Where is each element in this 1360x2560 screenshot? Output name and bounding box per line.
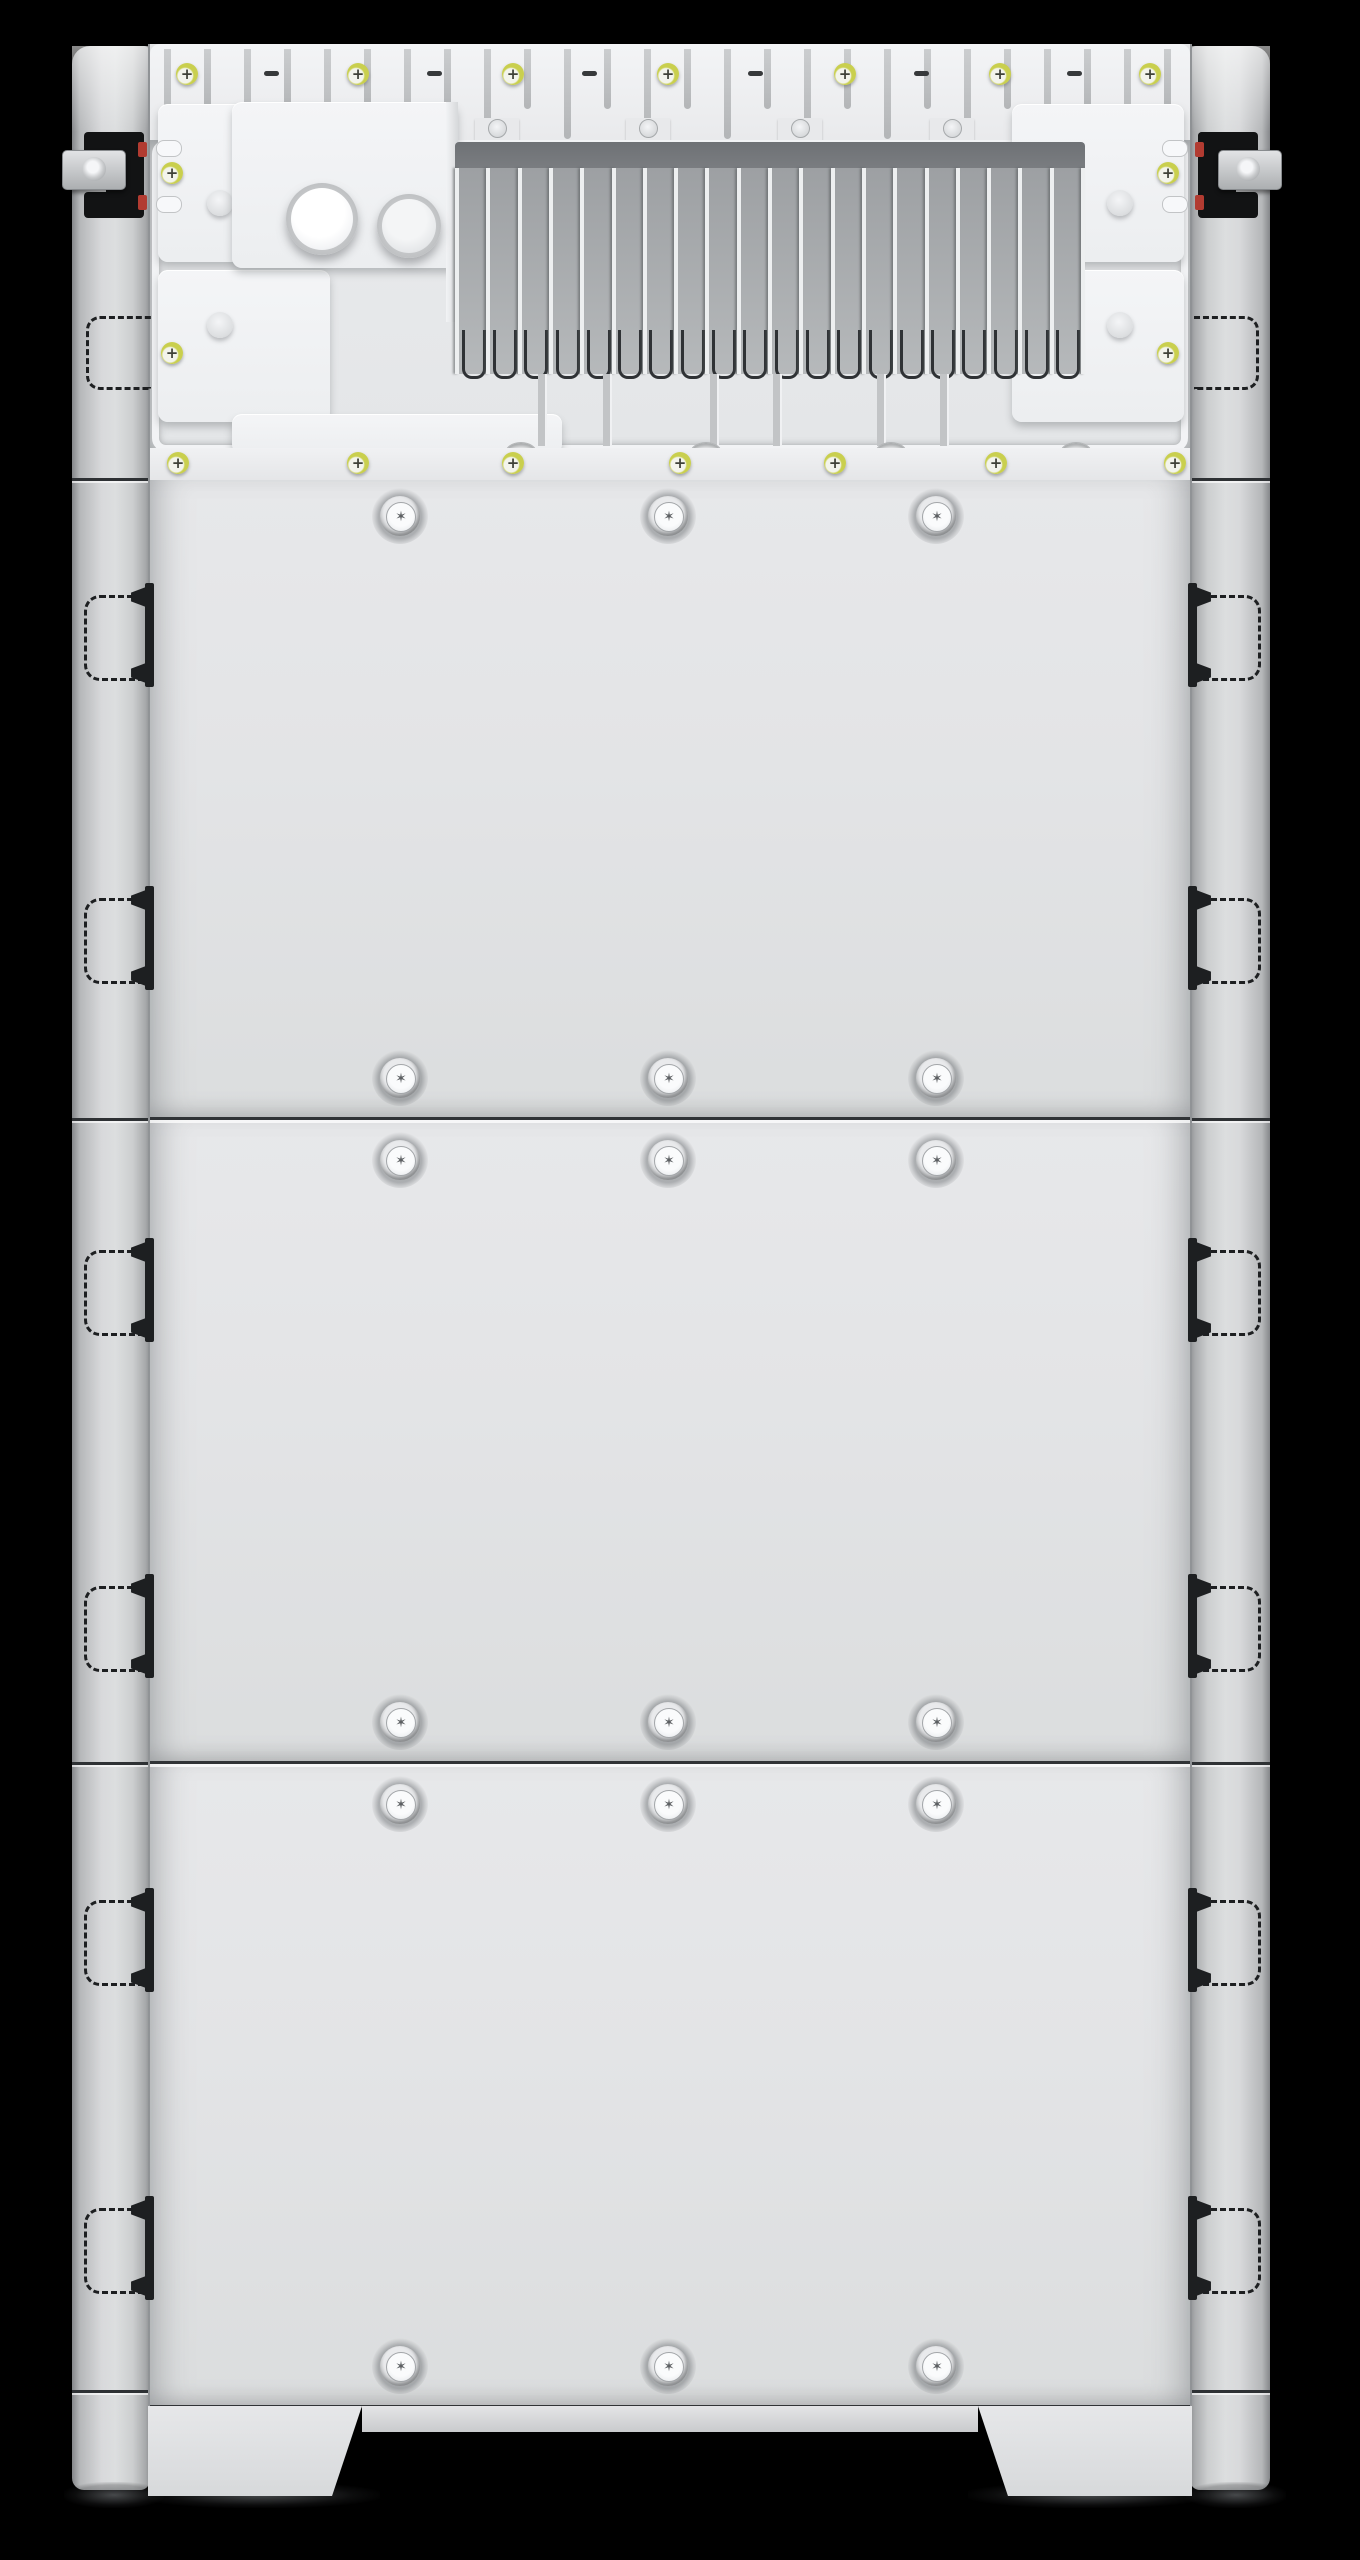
heatsink-channel: [1025, 330, 1049, 379]
rail-seam-highlight: [1190, 1765, 1270, 1767]
compartment-knob: [207, 312, 233, 338]
heatsink-channel: [462, 330, 486, 379]
rail-top-highlight: [1190, 46, 1270, 132]
handle-latch-bar: [145, 1888, 154, 1992]
cover-screw: +: [161, 342, 183, 364]
heatsink-fin: [612, 168, 616, 374]
heatsink-fin: [768, 168, 772, 374]
heatsink-channel: [1056, 330, 1080, 379]
heatsink-fin: [1018, 168, 1022, 374]
handle-latch-bar: [145, 2196, 154, 2300]
torx-screw: ✶: [654, 1064, 684, 1094]
dashed-label-outline: [1194, 316, 1259, 390]
handle-latch-bar: [1188, 886, 1197, 990]
module-seam-highlight: [150, 1764, 1190, 1767]
locating-pin: [639, 119, 658, 138]
heatsink-fin: [1050, 168, 1054, 374]
cover-screw: +: [834, 63, 856, 85]
comb-slot: [764, 49, 771, 109]
torx-screw: ✶: [386, 1708, 416, 1738]
torx-screw: ✶: [922, 2352, 952, 2382]
handle-latch-bar: [145, 886, 154, 990]
comb-slot: [204, 49, 211, 109]
latch-red-accent: [138, 195, 147, 210]
battery-module-1: [150, 480, 1190, 1118]
heatsink-channel: [587, 330, 611, 379]
heatsink-fin: [549, 168, 553, 374]
heatsink-fin: [956, 168, 960, 374]
dashed-label-outline: [86, 316, 151, 390]
heatsink-channel: [743, 330, 767, 379]
rail-handle-cutout: [1202, 898, 1261, 984]
torx-screw: ✶: [922, 1064, 952, 1094]
compartment-box: [158, 270, 330, 422]
vent-slot: [748, 71, 763, 76]
latch-red-accent: [1195, 195, 1204, 210]
comb-slot: [724, 49, 731, 139]
terminal-pill: [1162, 196, 1188, 213]
heatsink-channel: [837, 330, 861, 379]
heatsink-channel: [900, 330, 924, 379]
cover-screw: +: [347, 452, 369, 474]
torx-screw: ✶: [386, 502, 416, 532]
shelf-divider-tab: [773, 374, 780, 446]
terminal-pill: [1162, 140, 1188, 157]
heatsink-channel: [649, 330, 673, 379]
rail-seam-highlight: [1190, 481, 1270, 483]
heatsink-fin: [518, 168, 522, 374]
heatsink-fin: [893, 168, 897, 374]
comb-slot: [1084, 49, 1091, 109]
compartment-knob: [207, 190, 233, 216]
heatsink-fin: [737, 168, 741, 374]
heatsink-channel: [806, 330, 830, 379]
latch-red-accent: [138, 142, 147, 157]
heatsink-channel: [775, 330, 799, 379]
rail-seam-highlight: [72, 1765, 150, 1767]
cover-screw: +: [502, 63, 524, 85]
heatsink-channel: [524, 330, 548, 379]
cable-gland: [382, 199, 436, 253]
front-foot-right: [978, 2406, 1192, 2496]
cover-screw: +: [985, 452, 1007, 474]
torx-screw: ✶: [386, 1790, 416, 1820]
handle-latch-bar: [1188, 583, 1197, 687]
torx-screw: ✶: [654, 502, 684, 532]
comb-slot: [444, 49, 451, 109]
handle-latch-bar: [145, 1238, 154, 1342]
heatsink-fin: [1081, 168, 1085, 374]
cover-screw: +: [502, 452, 524, 474]
latch-bolt-hole: [1236, 157, 1260, 181]
handle-latch-bar: [1188, 1238, 1197, 1342]
comb-slot: [564, 49, 571, 139]
latch-red-accent: [1195, 142, 1204, 157]
shelf-divider-tab: [877, 374, 884, 446]
torx-screw: ✶: [922, 1790, 952, 1820]
cover-screw: +: [657, 63, 679, 85]
heatsink-channel: [493, 330, 517, 379]
heatsink-channel: [618, 330, 642, 379]
battery-module-2: [150, 1118, 1190, 1762]
terminal-pill: [156, 140, 182, 157]
handle-latch-bar: [1188, 2196, 1197, 2300]
heatsink-channel: [994, 330, 1018, 379]
cover-screw: +: [1139, 63, 1161, 85]
shelf-divider-tab: [603, 374, 610, 446]
battery-stack-render: ++++++++++++++++++✶✶✶✶✶✶✶✶✶✶✶✶✶✶✶✶✶✶: [0, 0, 1360, 2560]
cover-screw: +: [1157, 162, 1179, 184]
rail-handle-cutout: [1202, 2208, 1261, 2294]
comb-slot: [924, 49, 931, 109]
module-seam-highlight: [150, 1120, 1190, 1123]
torx-screw: ✶: [386, 2352, 416, 2382]
cover-screw: +: [161, 162, 183, 184]
torx-screw: ✶: [386, 1064, 416, 1094]
torx-screw: ✶: [922, 1708, 952, 1738]
torx-screw: ✶: [654, 1146, 684, 1176]
heatsink-fin: [674, 168, 678, 374]
heatsink-channel: [869, 330, 893, 379]
locating-pin: [791, 119, 810, 138]
rail-handle-cutout: [1202, 595, 1261, 681]
comb-slot: [684, 49, 691, 109]
handle-latch-bar: [145, 1574, 154, 1678]
cover-screw: +: [176, 63, 198, 85]
comb-slot: [524, 49, 531, 109]
compartment-knob: [1107, 312, 1133, 338]
bottom-apron: [362, 2406, 978, 2432]
body-rail-gap: [1190, 44, 1192, 2406]
vent-slot: [914, 71, 929, 76]
heatsink-fin: [799, 168, 803, 374]
heatsink-channel: [681, 330, 705, 379]
shelf-divider-tab: [940, 374, 947, 446]
handle-latch-bar: [1188, 1574, 1197, 1678]
vent-slot: [427, 71, 442, 76]
rail-handle-cutout: [1202, 1250, 1261, 1336]
handle-latch-bar: [145, 583, 154, 687]
heatsink-channel: [556, 330, 580, 379]
heatsink-channel: [962, 330, 986, 379]
rail-seam-highlight: [72, 1121, 150, 1123]
latch-clamp: [84, 192, 144, 218]
rail-seam-highlight: [1190, 2393, 1270, 2395]
cover-screw: +: [989, 63, 1011, 85]
heatsink-fin: [455, 168, 459, 374]
rail-seam-highlight: [1190, 1121, 1270, 1123]
comb-slot: [884, 49, 891, 139]
comb-slot: [284, 49, 291, 109]
comb-slot: [1164, 49, 1171, 109]
heatsink-fin: [987, 168, 991, 374]
comb-slot: [604, 49, 611, 109]
torx-screw: ✶: [922, 502, 952, 532]
vent-slot: [264, 71, 279, 76]
torx-screw: ✶: [654, 2352, 684, 2382]
cover-screw: +: [1164, 452, 1186, 474]
rail-seam-highlight: [72, 2393, 150, 2395]
rail-seam-highlight: [72, 481, 150, 483]
heatsink-fin: [831, 168, 835, 374]
heatsink-fin: [580, 168, 584, 374]
heatsink-fin: [862, 168, 866, 374]
torx-screw: ✶: [654, 1708, 684, 1738]
cover-screw: +: [347, 63, 369, 85]
heatsink-fin: [643, 168, 647, 374]
rail-handle-cutout: [1202, 1900, 1261, 1986]
latch-bolt-hole: [82, 157, 106, 181]
torx-screw: ✶: [386, 1146, 416, 1176]
terminal-pill: [156, 196, 182, 213]
cover-screw: +: [669, 452, 691, 474]
cable-gland: [291, 188, 353, 250]
torx-screw: ✶: [922, 1146, 952, 1176]
heatsink-fin: [705, 168, 709, 374]
heatsink-fin: [486, 168, 490, 374]
rail-handle-cutout: [1202, 1586, 1261, 1672]
latch-clamp: [1198, 192, 1258, 218]
vent-slot: [1067, 71, 1082, 76]
locating-pin: [943, 119, 962, 138]
shelf-divider-tab: [710, 374, 717, 446]
cover-screw: +: [824, 452, 846, 474]
ground-shadow: [1186, 2482, 1286, 2508]
handle-latch-bar: [1188, 1888, 1197, 1992]
heatsink-channel: [712, 330, 736, 379]
heatsink-channel: [931, 330, 955, 379]
vent-slot: [582, 71, 597, 76]
front-foot-left: [148, 2406, 362, 2496]
cover-screw: +: [167, 452, 189, 474]
rail-top-highlight: [72, 46, 150, 132]
cover-screw: +: [1157, 342, 1179, 364]
heatsink-fin: [925, 168, 929, 374]
shelf-divider-tab: [538, 374, 545, 446]
compartment-knob: [1107, 190, 1133, 216]
battery-module-3: [150, 1762, 1190, 2406]
locating-pin: [488, 119, 507, 138]
torx-screw: ✶: [654, 1790, 684, 1820]
